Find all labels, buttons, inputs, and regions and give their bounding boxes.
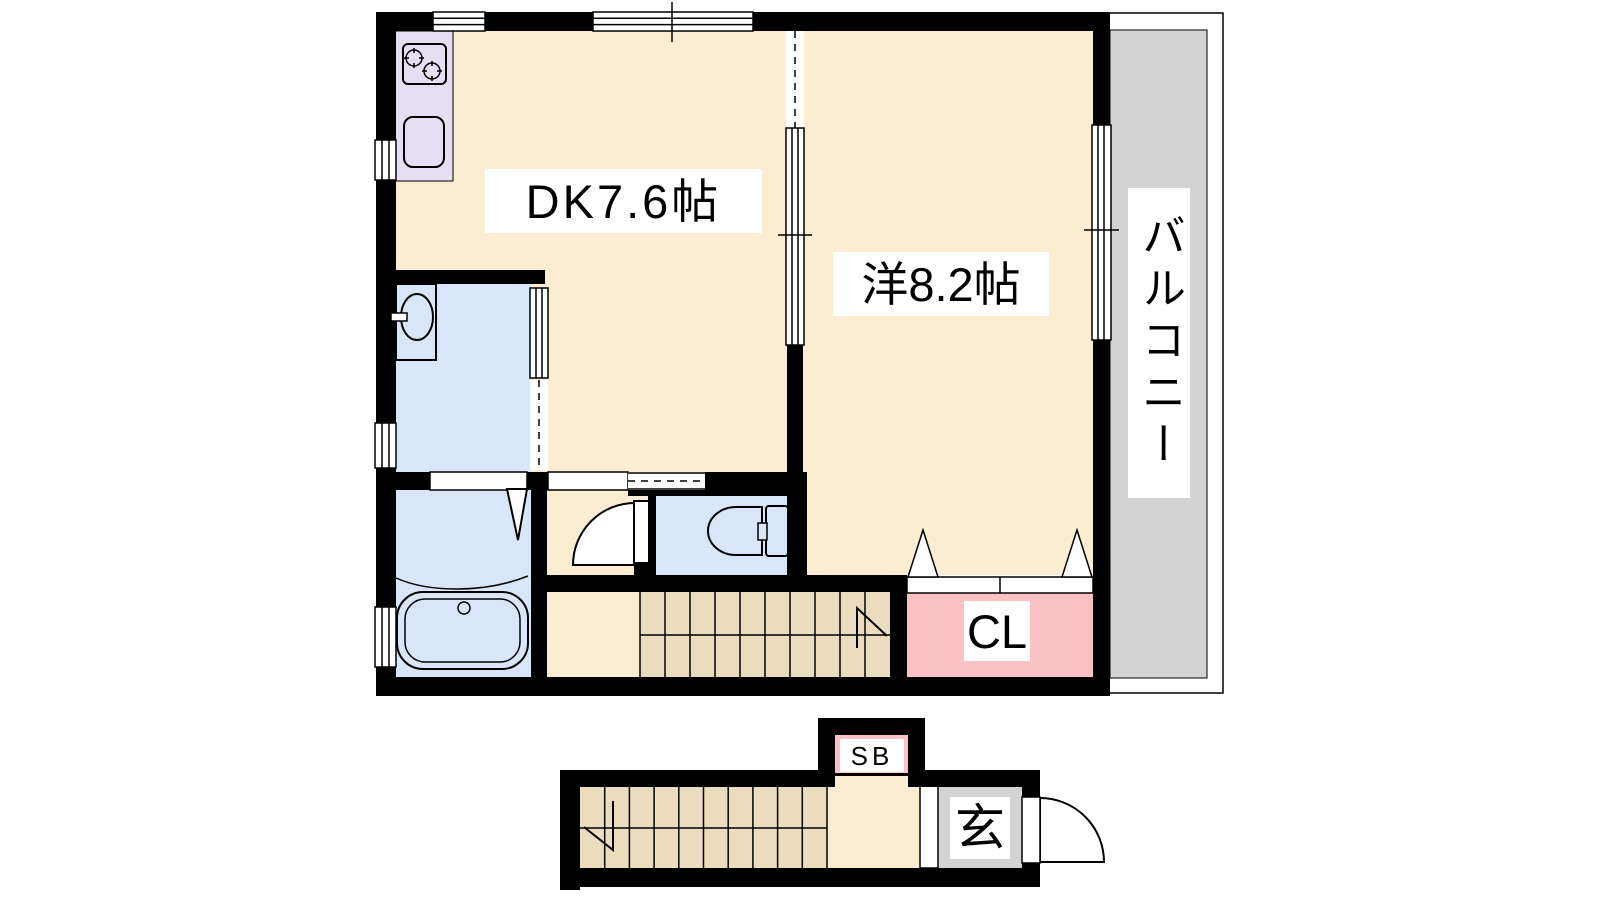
shoe-box-wall-left — [818, 718, 835, 787]
lower-wall-right-lower — [1022, 862, 1040, 887]
wall-bottom — [376, 677, 1110, 696]
western-room-label: 洋8.2帖 — [833, 252, 1049, 316]
wall-toilet-top-thin — [628, 490, 790, 496]
lower-wall-right-upper — [1022, 770, 1040, 798]
lower-wall-top-left — [560, 770, 818, 787]
entrance-label: 玄 — [950, 797, 1010, 859]
stairs-upper — [640, 592, 890, 678]
window-top-kitchen — [433, 12, 485, 31]
closet-label: CL — [964, 601, 1030, 661]
dk-room-label: DK7.6帖 — [485, 169, 762, 233]
entrance-door — [1022, 797, 1104, 863]
floorplan-page: DK7.6帖 洋8.2帖 バルコニー CL SB 玄 — [0, 0, 1600, 900]
shoe-box-label: SB — [840, 739, 904, 772]
entrance-door-swing-arc — [1040, 798, 1104, 862]
opening-toilet-dashed — [628, 472, 705, 490]
kitchen-sink-icon — [404, 117, 444, 167]
lower-wall-bottom — [560, 868, 1040, 887]
wall-closet-left — [890, 575, 907, 678]
toilet-door-leaf — [634, 501, 649, 563]
entrance-step — [920, 785, 938, 868]
wall-mid-c — [705, 472, 807, 490]
balcony-label: バルコニー — [1128, 188, 1190, 498]
wall-toilet-door-stub — [634, 563, 656, 575]
wall-mid-a — [376, 472, 430, 490]
opening-hallway — [548, 472, 628, 490]
wall-partition-dk-western — [787, 345, 803, 475]
lower-floor — [560, 718, 1104, 890]
entrance-door-opening — [1022, 797, 1040, 863]
shoe-box-wall-right — [908, 718, 925, 787]
toilet-icon — [708, 506, 788, 556]
wall-left — [376, 12, 396, 696]
wall-washbasin-top — [376, 270, 545, 284]
wall-stairs-top — [531, 575, 907, 592]
window-left-kitchen — [375, 140, 396, 180]
wall-right — [1093, 12, 1110, 678]
shoe-box-front-line — [835, 773, 908, 776]
window-left-bathroom — [375, 607, 396, 667]
window-left-washbasin — [375, 423, 396, 468]
washbasin-room-floor — [396, 284, 531, 472]
floorplan-drawing — [0, 0, 1600, 900]
opening-washbasin — [430, 472, 527, 490]
stairs-lower — [580, 785, 827, 868]
